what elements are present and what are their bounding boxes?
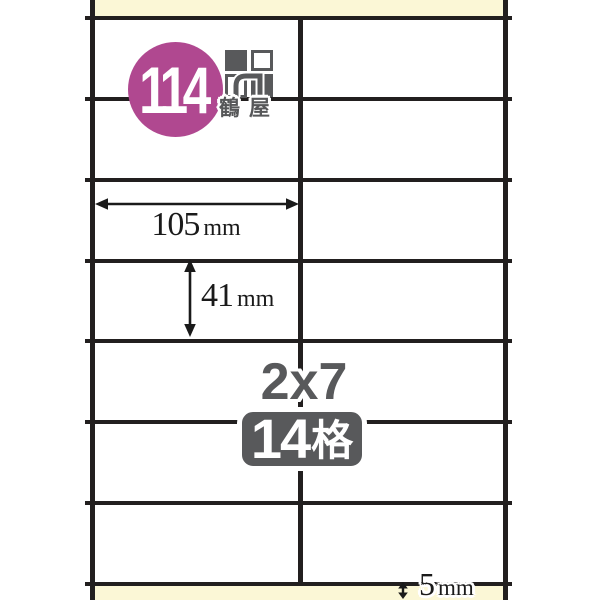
sheet-column-divider-line xyxy=(298,18,303,584)
bottom-margin-value: 5 xyxy=(419,566,434,602)
sheet-top-margin xyxy=(94,0,503,16)
label-width-dimension: 105mm xyxy=(151,206,240,244)
layout-text: 2x7 xyxy=(261,352,348,412)
sheet-row-line xyxy=(85,16,512,20)
label-height-unit: mm xyxy=(237,286,274,312)
label-height-dimension: 41mm xyxy=(201,277,274,315)
bottom-margin-dimension: 5mm xyxy=(419,566,474,603)
brand-name: 鶴屋 xyxy=(219,92,281,122)
label-sheet-diagram: 105mm 41mm 114 鶴屋 2x7 14 格 5mm xyxy=(0,0,600,600)
sheet-right-edge-line xyxy=(503,0,508,600)
bottom-margin-unit: mm xyxy=(438,575,474,600)
label-count-badge: 14 格 xyxy=(237,407,367,471)
label-width-value: 105 xyxy=(151,206,199,243)
vertical-double-arrow-icon xyxy=(180,258,200,338)
product-code: 114 xyxy=(139,52,211,128)
herwood-squares-logo-icon xyxy=(224,50,274,98)
label-width-unit: mm xyxy=(203,215,240,241)
label-count-value: 14 xyxy=(251,411,309,467)
small-vertical-double-arrow-icon xyxy=(397,582,409,599)
sheet-row-line xyxy=(85,178,512,182)
product-code-badge: 114 xyxy=(128,42,223,137)
label-height-value: 41 xyxy=(201,277,233,314)
label-count-unit: 格 xyxy=(311,420,353,462)
sheet-row-line xyxy=(85,259,512,263)
sheet-row-line xyxy=(85,339,512,343)
sheet-row-line xyxy=(85,501,512,505)
sheet-left-edge-line xyxy=(90,0,95,600)
